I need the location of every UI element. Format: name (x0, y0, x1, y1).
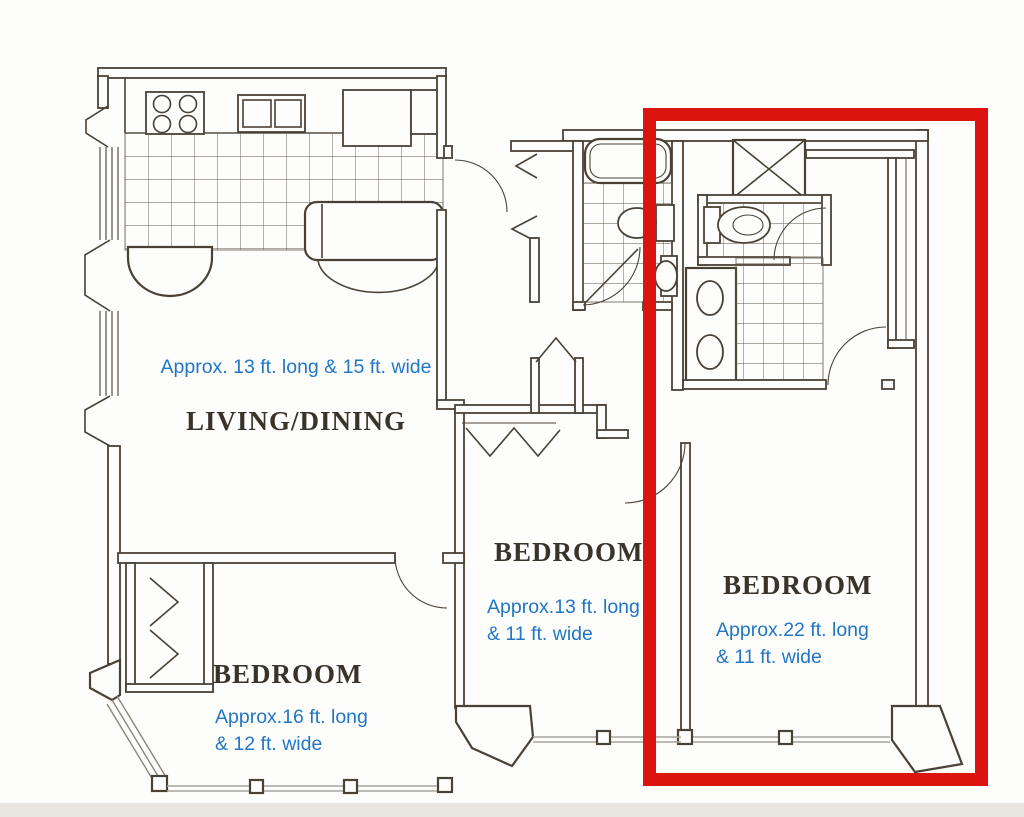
bedroom2-label: BEDROOM (494, 537, 644, 568)
bedroom1-door-arc (395, 556, 447, 608)
bedroom1-dim-line1: Approx.16 ft. long (215, 704, 368, 731)
stove-icon (146, 92, 204, 134)
bedroom1-dimensions: Approx.16 ft. long & 12 ft. wide (215, 704, 368, 758)
kitchen-sink-icon (238, 95, 305, 132)
kitchen-door-arc (455, 160, 507, 212)
floor-plan: Approx. 13 ft. long & 15 ft. wide LIVING… (0, 0, 1024, 817)
bedroom1-dim-line2: & 12 ft. wide (215, 731, 368, 758)
kitchen-island (305, 202, 443, 292)
kitchen-area (125, 78, 443, 296)
bedroom2-dim-line2: & 11 ft. wide (487, 621, 640, 648)
bedroom1-closet-doors (150, 578, 178, 678)
bedroom1-label: BEDROOM (213, 659, 363, 690)
living-dining-label: LIVING/DINING (150, 406, 442, 437)
bedroom1-window-sill (152, 776, 452, 793)
page-bottom-band (0, 803, 1024, 817)
duct-arrow (536, 338, 576, 362)
entry-area (437, 76, 577, 409)
bedroom1-closet (126, 563, 213, 692)
bay-window-slant (107, 696, 166, 785)
bedroom2-bay-corner (456, 706, 533, 766)
bedroom2-dimensions: Approx.13 ft. long & 11 ft. wide (487, 594, 640, 648)
highlight-rectangle (643, 108, 988, 786)
left-window-lower (100, 311, 118, 396)
entry-door-marks (512, 154, 537, 242)
bedroom2-closet-doors (466, 428, 560, 456)
bedroom2-dim-line1: Approx.13 ft. long (487, 594, 640, 621)
living-dining-dimensions: Approx. 13 ft. long & 15 ft. wide (150, 354, 442, 381)
left-window-upper (100, 147, 118, 240)
round-counter (128, 247, 212, 296)
